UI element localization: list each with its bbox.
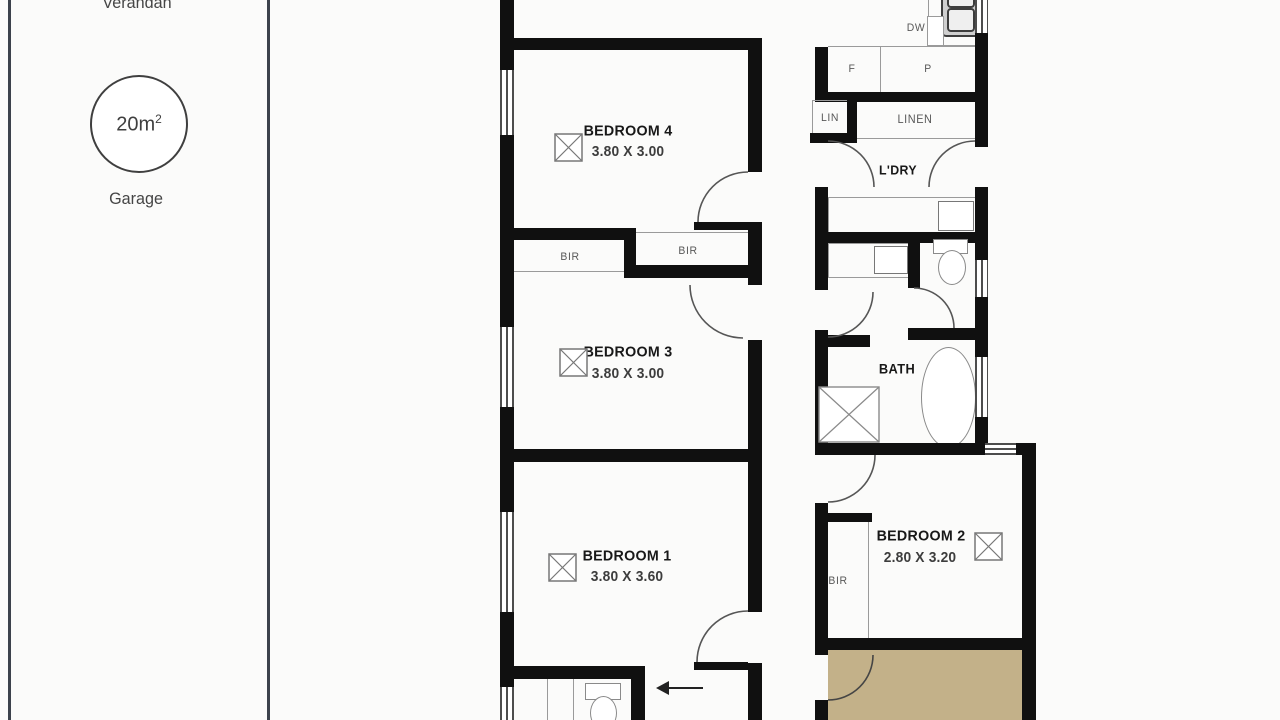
bir-right-opening-line bbox=[636, 232, 748, 233]
bath-label: BATH bbox=[879, 362, 915, 377]
wall-bedroom2-right bbox=[1022, 443, 1036, 720]
bedroom3-label: BEDROOM 3 bbox=[584, 344, 673, 361]
ensuite-fixture-line bbox=[573, 679, 574, 720]
door-leaf-bedroom1 bbox=[694, 662, 748, 670]
wall-bedroom2-top bbox=[815, 443, 985, 455]
bir-bedroom2-label: BIR bbox=[828, 575, 847, 587]
bedroom2-dims: 2.80 X 3.20 bbox=[884, 550, 957, 566]
wall-ensuite-right bbox=[631, 666, 645, 720]
wall bbox=[975, 417, 988, 443]
door-leaf-bedroom4 bbox=[694, 222, 748, 230]
dishwasher-label: DW bbox=[907, 22, 926, 34]
cabinet-line bbox=[828, 46, 975, 47]
lin-label: LIN bbox=[821, 112, 839, 124]
wall bbox=[748, 340, 762, 612]
vanity-basin bbox=[874, 246, 908, 274]
door-arc-bedroom3 bbox=[690, 285, 743, 338]
bir-right-label: BIR bbox=[678, 245, 697, 257]
bedroom2-label: BEDROOM 2 bbox=[877, 528, 966, 545]
dishwasher-unit bbox=[927, 16, 944, 46]
window-bath bbox=[975, 357, 988, 417]
wall bbox=[748, 50, 762, 172]
deck-area bbox=[828, 650, 1022, 720]
wall bbox=[815, 187, 828, 290]
kitchen-sink-bowl bbox=[947, 0, 975, 8]
pantry-label: P bbox=[924, 63, 932, 75]
fan-symbol-bedroom2 bbox=[974, 532, 1003, 561]
fridge-label: F bbox=[849, 63, 856, 75]
wall bbox=[975, 33, 988, 147]
door-arc-bath bbox=[828, 292, 873, 337]
wall-bedroom3-bottom bbox=[500, 449, 762, 462]
wall-bedroom4-top bbox=[500, 38, 762, 50]
linen-line bbox=[857, 138, 975, 139]
site-boundary-right bbox=[267, 0, 270, 720]
laundry-tub bbox=[938, 201, 974, 231]
door-arc-laundry-hall bbox=[828, 141, 874, 187]
door-arc-bedroom4 bbox=[698, 172, 748, 222]
bir-left-opening-line bbox=[514, 271, 624, 272]
cabinet-divider bbox=[880, 47, 881, 92]
bir2-line bbox=[868, 522, 869, 638]
window-bedroom1 bbox=[500, 512, 514, 612]
door-arc-laundry-external bbox=[929, 141, 975, 187]
bedroom4-label: BEDROOM 4 bbox=[584, 123, 673, 140]
door-arc-bedroom2 bbox=[828, 455, 875, 502]
site-boundary-left bbox=[8, 0, 11, 720]
wall-bir-bottom bbox=[624, 265, 762, 278]
linen-label: LINEN bbox=[897, 114, 932, 126]
ensuite-fixture-line bbox=[547, 679, 548, 720]
window-bedroom3 bbox=[500, 327, 514, 407]
garage-area-value: 20m2 bbox=[116, 112, 162, 137]
wall bbox=[975, 187, 988, 260]
kitchen-sink-bowl bbox=[947, 8, 975, 32]
wall bbox=[500, 135, 514, 327]
bedroom1-label: BEDROOM 1 bbox=[583, 548, 672, 565]
wall bbox=[815, 47, 828, 92]
shower-symbol bbox=[818, 386, 880, 443]
window-ensuite bbox=[500, 687, 514, 720]
laundry-label: L'DRY bbox=[879, 163, 917, 178]
fan-symbol-bedroom3 bbox=[559, 348, 588, 377]
wall bbox=[975, 297, 988, 357]
wall bbox=[810, 133, 857, 143]
window-bedroom2 bbox=[985, 443, 1016, 455]
bir-left-label: BIR bbox=[560, 251, 579, 263]
verandah-label: Verandah bbox=[102, 0, 171, 13]
entry-arrow bbox=[656, 681, 703, 695]
door-arc-bedroom1 bbox=[697, 611, 748, 662]
fan-symbol-bedroom1 bbox=[548, 553, 577, 582]
bedroom4-dims: 3.80 X 3.00 bbox=[592, 144, 665, 160]
wall bbox=[815, 700, 828, 720]
door-arc-wc bbox=[914, 288, 954, 328]
window-kitchen bbox=[975, 0, 988, 33]
bedroom1-dims: 3.80 X 3.60 bbox=[591, 569, 664, 585]
wall bbox=[748, 663, 762, 720]
wall bbox=[500, 0, 514, 70]
floor-plan: Verandah 20m2 Garage DW F P LIN bbox=[0, 0, 1280, 720]
bathtub bbox=[921, 347, 976, 448]
window-wc bbox=[975, 260, 988, 297]
wall-bedroom1-bottom bbox=[500, 666, 645, 679]
wall-wc-bottom bbox=[908, 328, 977, 340]
wall-bir-top bbox=[514, 228, 636, 240]
window-bedroom4 bbox=[500, 70, 514, 135]
wall-wc-left bbox=[908, 232, 920, 288]
wall-bedroom2-bottom bbox=[815, 638, 1036, 650]
bedroom3-dims: 3.80 X 3.00 bbox=[592, 366, 665, 382]
garage-area-circle: 20m2 bbox=[90, 75, 188, 173]
wall-bir2-top bbox=[815, 513, 872, 522]
wall bbox=[815, 503, 828, 655]
fan-symbol-bedroom4 bbox=[554, 133, 583, 162]
toilet-bowl-wc bbox=[938, 250, 966, 285]
garage-label: Garage bbox=[109, 189, 163, 209]
